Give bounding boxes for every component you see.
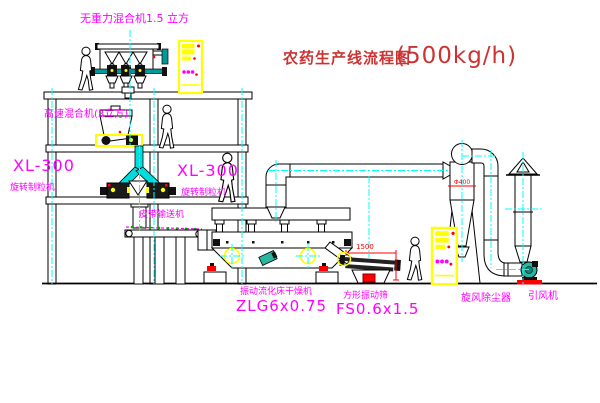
worker-figure-ground [407,237,421,280]
worker-figure-top-floor [78,47,92,90]
label-gravity-free-mixer: 无重力混合机1.5 立方 [80,13,189,24]
label-granulator-right-name: 旋转制粒机 [181,189,226,198]
label-vibrating-screen-model: FS0.6x1.5 [336,302,419,317]
fluid-bed-dryer [204,208,352,283]
worker-figure-second-floor [159,105,173,148]
dimension-cyclone-diameter: Φ400 [454,180,470,186]
diagram-title: 农药生产线流程图 [283,51,411,66]
control-panel-lower [432,228,457,284]
belt-conveyor [125,226,216,284]
square-vibrating-screen [339,255,401,283]
label-high-speed-mixer: 高速混合机(3立方) [44,110,128,120]
granulator-right [146,183,176,198]
label-cyclone-dust-collector: 旋风除尘器 [461,294,511,304]
label-fluid-bed-dryer: 振动流化床干燥机 [240,288,312,297]
label-fluid-bed-dryer-model: ZLG6x0.75 [236,299,327,314]
gravity-free-mixer [90,43,168,98]
cad-process-flow-diagram: 农药生产线流程图 (500kg/h) 无重力混合机1.5 立方 高速混合机(3立… [0,0,600,403]
granulator-left [100,183,130,198]
label-belt-conveyor: 皮带输送机 [139,211,184,220]
diagram-title-capacity: (500kg/h) [396,45,517,68]
label-granulator-left-model: XL-300 [13,158,75,174]
control-panel-upper [179,41,202,93]
label-granulator-right-model: XL-300 [177,163,239,179]
label-granulator-left-name: 旋转制粒机 [10,184,55,193]
label-induced-draft-fan: 引风机 [528,292,558,302]
dimension-screen-length: 1500 [356,244,374,251]
